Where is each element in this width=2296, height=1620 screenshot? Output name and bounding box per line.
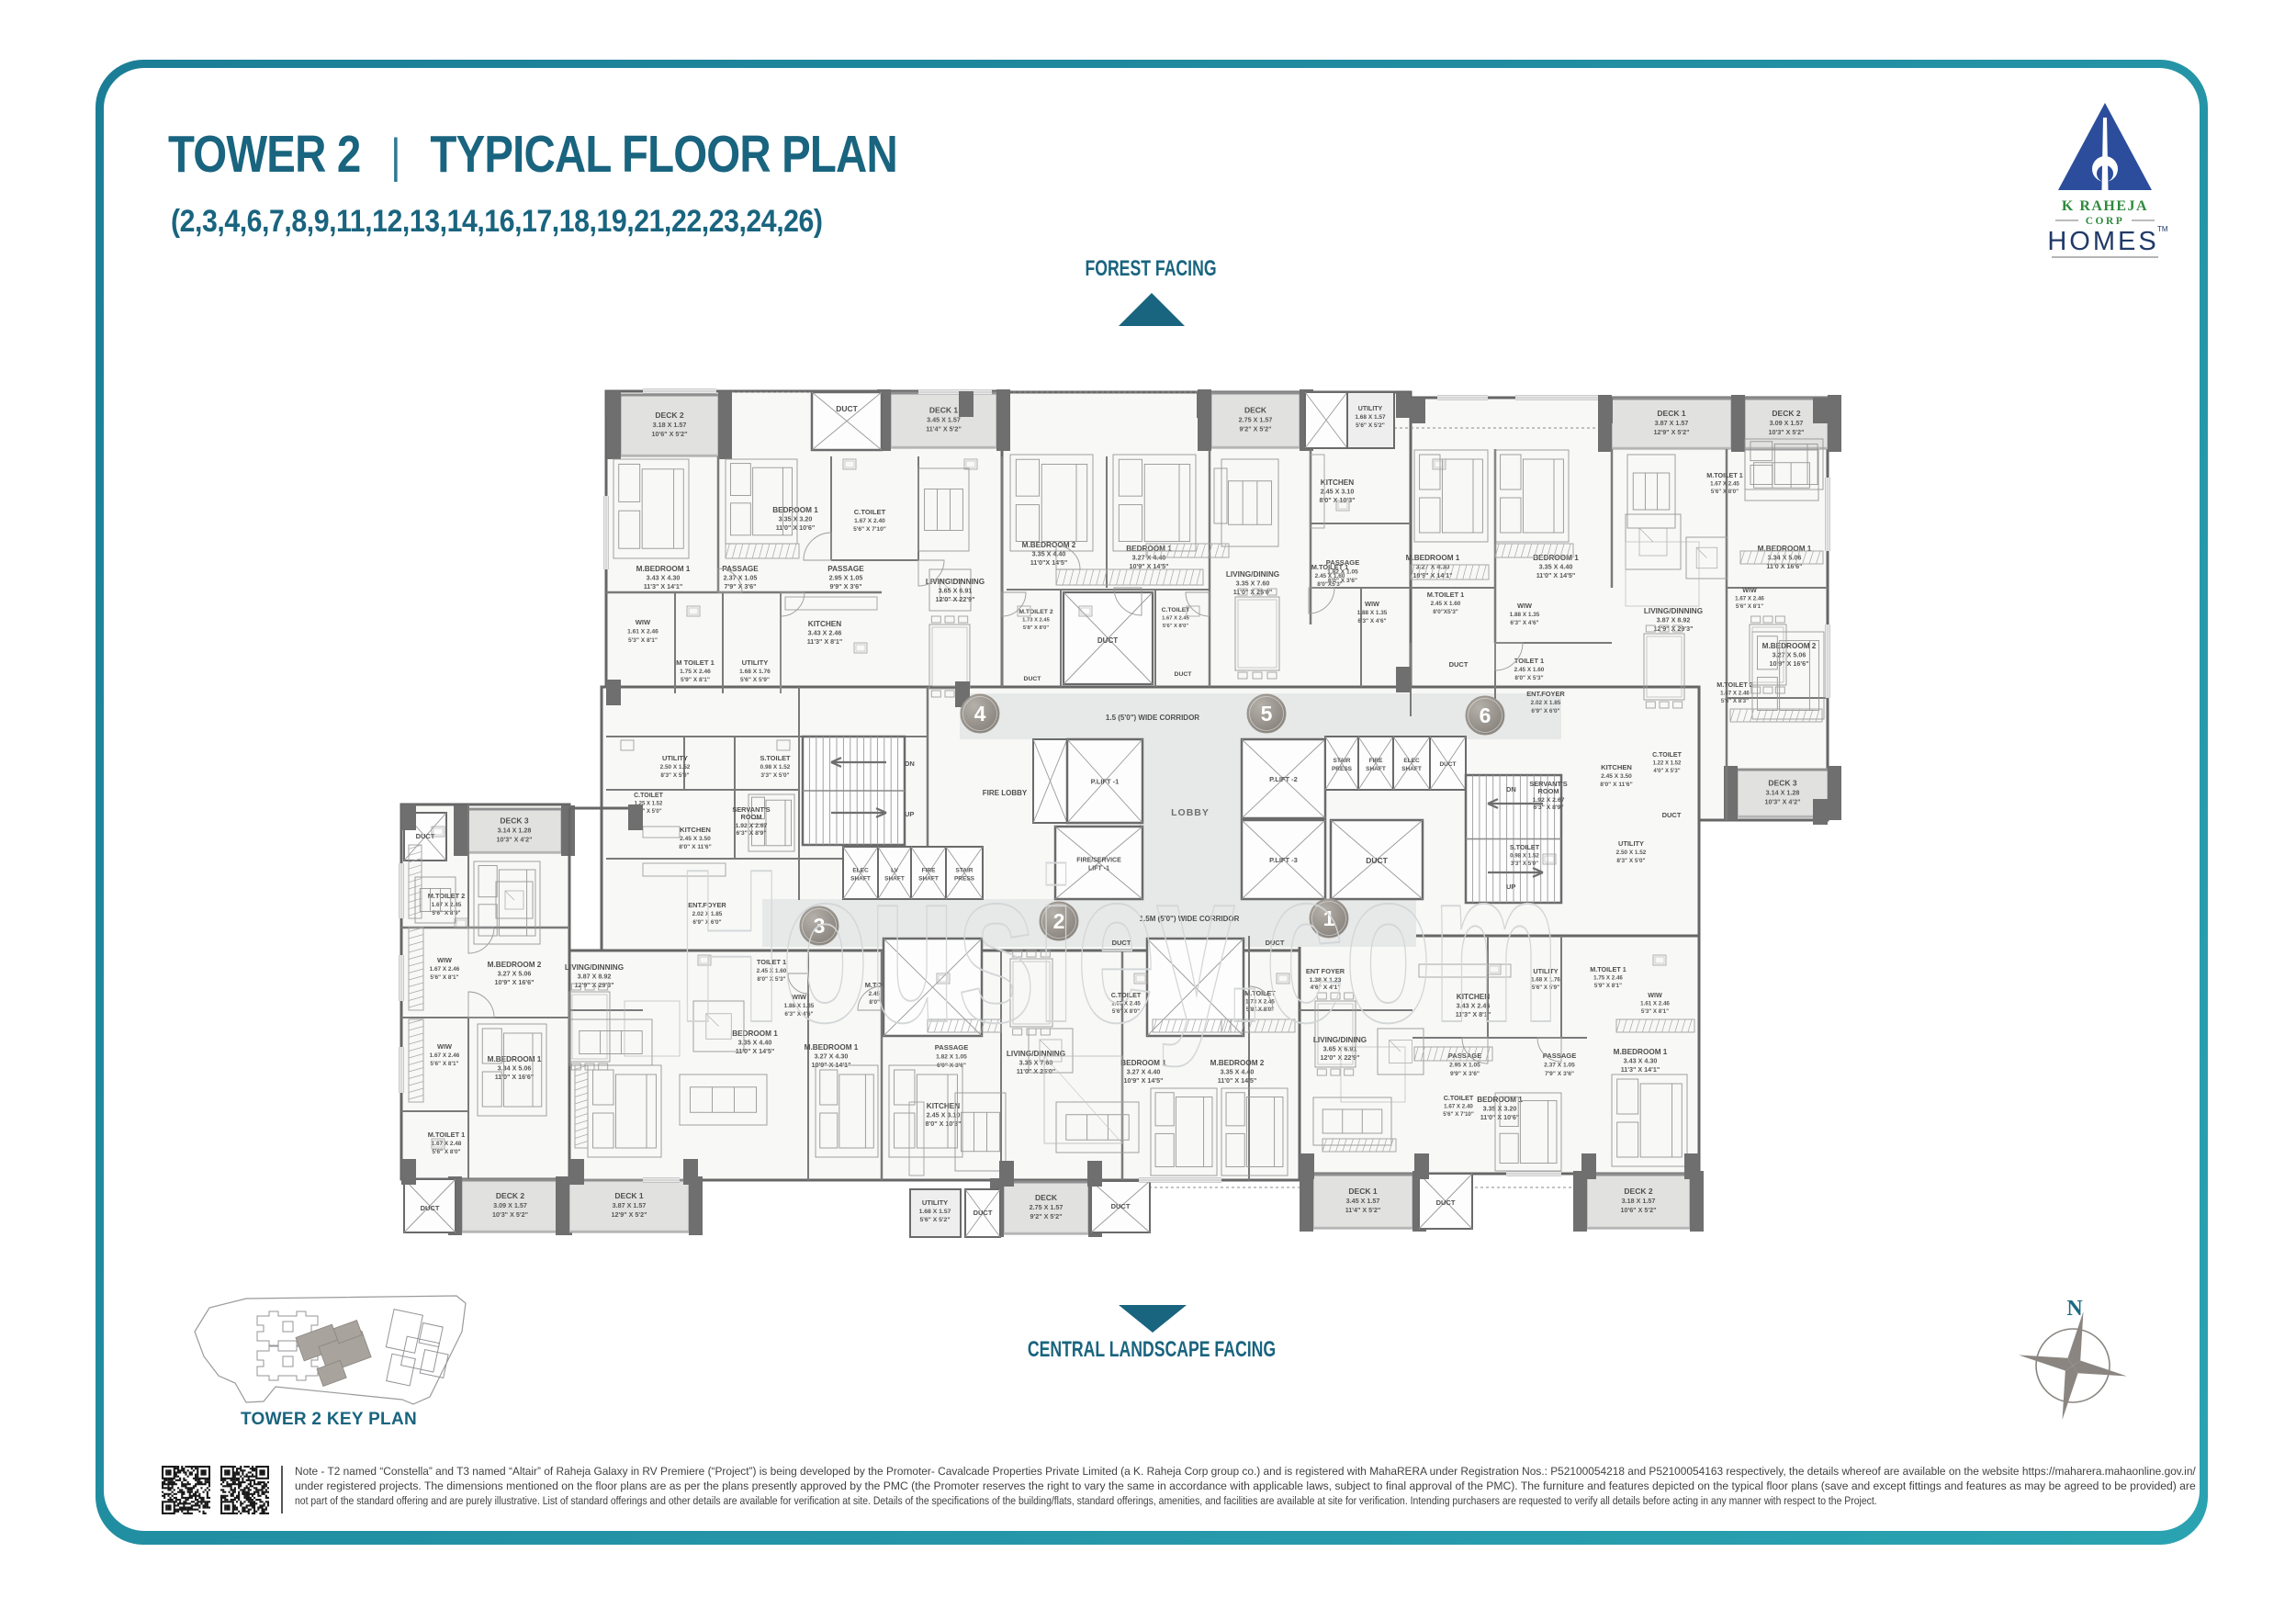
svg-text:11'0" X 14'5": 11'0" X 14'5" [1536,571,1576,579]
svg-text:1.88 X 1.35: 1.88 X 1.35 [1357,610,1388,616]
svg-text:WIW: WIW [1648,991,1662,999]
svg-text:DN: DN [905,759,915,768]
svg-text:5'6" X 8'9": 5'6" X 8'9" [432,910,460,917]
svg-text:TM: TM [2157,225,2168,233]
svg-text:4'0" X 5'3": 4'0" X 5'3" [1653,769,1680,774]
svg-text:M.TOILET 2: M.TOILET 2 [1019,609,1052,615]
svg-text:UTILITY: UTILITY [1618,839,1644,848]
svg-text:3.43 X 4.30: 3.43 X 4.30 [1624,1057,1658,1065]
svg-text:KITCHEN: KITCHEN [1601,763,1632,771]
svg-text:11'0" X 14'5": 11'0" X 14'5" [1218,1076,1257,1085]
svg-text:3.27 X 4.40: 3.27 X 4.40 [1127,1068,1161,1076]
svg-text:DECK 1: DECK 1 [614,1191,643,1200]
svg-text:10'9" X 14'5": 10'9" X 14'5" [1123,1076,1163,1085]
svg-text:3.14 X 1.28: 3.14 X 1.28 [498,827,532,835]
svg-text:4: 4 [974,702,986,726]
svg-text:8'0" X 11'6": 8'0" X 11'6" [1600,782,1632,788]
svg-text:12'9" X 5'2": 12'9" X 5'2" [611,1210,647,1219]
svg-text:BEDROOM 1: BEDROOM 1 [1533,554,1579,562]
svg-text:2.45 X 3.50: 2.45 X 3.50 [1601,773,1632,780]
svg-text:M.BEDROOM 1: M.BEDROOM 1 [488,1055,542,1063]
svg-text:3.87 X 1.57: 3.87 X 1.57 [613,1201,647,1209]
svg-text:5'6" X 5'9": 5'6" X 5'9" [740,677,770,683]
svg-text:10'6" X 5'2": 10'6" X 5'2" [1620,1206,1656,1214]
svg-text:DN: DN [1506,785,1516,793]
svg-text:1.68 X 1.57: 1.68 X 1.57 [1355,414,1386,421]
svg-text:5'6" X 8'0": 5'6" X 8'0" [1711,489,1739,495]
svg-text:5'6" X 5'2": 5'6" X 5'2" [919,1217,950,1223]
svg-text:3.18 X 1.57: 3.18 X 1.57 [1622,1197,1656,1205]
svg-text:M.TOILET 1: M.TOILET 1 [1311,563,1349,571]
svg-text:P.LIFT -2: P.LIFT -2 [1269,775,1298,783]
svg-text:BEDROOM 1: BEDROOM 1 [1126,545,1172,553]
svg-text:6'3" X 4'6": 6'3" X 4'6" [1357,618,1386,624]
svg-text:1.88 X 1.35: 1.88 X 1.35 [1510,612,1540,618]
svg-text:3.43 X 2.46: 3.43 X 2.46 [808,629,842,637]
svg-text:DUCT: DUCT [836,404,858,413]
svg-text:DECK: DECK [1035,1193,1058,1202]
svg-text:11'3" X 14'1": 11'3" X 14'1" [1621,1065,1660,1074]
svg-text:5'6" X 8'1": 5'6" X 8'1" [430,974,458,981]
svg-text:8'0" X 10'3": 8'0" X 10'3" [925,1119,961,1128]
svg-text:5'6" X 8'1": 5'6" X 8'1" [1736,603,1763,610]
svg-text:KITCHEN: KITCHEN [1321,478,1354,487]
svg-text:1.61 X 2.46: 1.61 X 2.46 [627,629,658,636]
svg-text:K RAHEJA: K RAHEJA [2062,198,2148,214]
svg-text:DUCT: DUCT [1024,676,1042,682]
svg-text:PASSAGE: PASSAGE [722,565,759,573]
svg-text:6: 6 [1480,703,1491,727]
svg-text:3.35 X 4.40: 3.35 X 4.40 [1221,1068,1255,1076]
svg-text:M.BEDROOM 2: M.BEDROOM 2 [1022,541,1076,549]
svg-text:10'3" X 5'2": 10'3" X 5'2" [492,1210,528,1219]
svg-text:DECK 2: DECK 2 [1624,1187,1652,1196]
svg-text:3.87 X 1.57: 3.87 X 1.57 [1655,419,1689,427]
svg-text:8'0"X5'3": 8'0"X5'3" [1317,581,1343,588]
svg-text:BEDROOM 1: BEDROOM 1 [772,506,818,514]
svg-text:3.35 X 3.20: 3.35 X 3.20 [779,515,813,523]
svg-text:WIW: WIW [1742,586,1757,594]
svg-text:LOBBY: LOBBY [1171,807,1210,818]
svg-text:10'3" X 4'2": 10'3" X 4'2" [496,836,532,844]
svg-text:2.50 X 1.52: 2.50 X 1.52 [1616,849,1647,856]
svg-text:UP: UP [905,810,914,818]
svg-text:M.BEDROOM 1: M.BEDROOM 1 [636,565,691,573]
svg-text:10'9" X 16'6": 10'9" X 16'6" [1769,659,1808,668]
svg-text:KITCHEN: KITCHEN [808,620,841,628]
svg-text:2.45 X 1.60: 2.45 X 1.60 [1315,573,1345,579]
svg-text:5'8" X 8'0": 5'8" X 8'0" [1023,625,1049,631]
svg-text:DECK 3: DECK 3 [500,816,528,826]
svg-text:3'3" X 5'0": 3'3" X 5'0" [760,772,789,779]
svg-text:2.75 X 1.57: 2.75 X 1.57 [1030,1203,1064,1211]
svg-text:C.TOILET: C.TOILET [1162,607,1191,613]
svg-text:C.TOILET: C.TOILET [854,508,886,516]
svg-text:5: 5 [1261,702,1273,726]
svg-text:M.BEDROOM 1: M.BEDROOM 1 [1758,545,1812,553]
svg-text:FIRE LOBBY: FIRE LOBBY [983,789,1028,797]
svg-text:0.98 X 1.52: 0.98 X 1.52 [760,764,791,771]
svg-text:3.14 X 1.28: 3.14 X 1.28 [1766,789,1800,797]
svg-text:5'9" X 8'1": 5'9" X 8'1" [1594,983,1622,989]
svg-text:ELEC: ELEC [1403,758,1420,764]
svg-text:11'0" X 10'6": 11'0" X 10'6" [776,523,816,532]
svg-text:8'3" X 5'0": 8'3" X 5'0" [660,772,689,779]
svg-text:3.35 X 4.40: 3.35 X 4.40 [1539,563,1573,571]
svg-text:ENT.FOYER: ENT.FOYER [1526,690,1565,698]
svg-text:DUCT: DUCT [416,832,435,840]
svg-text:5'6" X 8'3": 5'6" X 8'3" [1721,698,1749,704]
svg-text:DECK 2: DECK 2 [496,1191,524,1200]
svg-text:6'3" X 8'9": 6'3" X 8'9" [1533,804,1563,811]
svg-text:DUCT: DUCT [1662,811,1682,819]
svg-text:DECK 2: DECK 2 [1772,409,1800,418]
svg-text:3.27 X 5.06: 3.27 X 5.06 [498,970,532,978]
svg-text:2.45 X 1.60: 2.45 X 1.60 [1431,601,1461,607]
svg-text:DUCT: DUCT [1175,671,1193,678]
svg-text:8'3" X 5'0": 8'3" X 5'0" [1616,858,1645,864]
svg-text:2.95 X 1.05: 2.95 X 1.05 [829,574,863,582]
svg-text:6'9" X 6'0": 6'9" X 6'0" [1531,708,1559,714]
svg-text:1.73 X 2.45: 1.73 X 2.45 [1022,618,1050,624]
svg-text:M.TOILET 1: M.TOILET 1 [1706,471,1742,479]
svg-text:1.67 X 2.40: 1.67 X 2.40 [854,518,885,524]
svg-text:1.67 X 2.46: 1.67 X 2.46 [430,966,460,973]
svg-text:5'6" X 7'10": 5'6" X 7'10" [853,526,886,533]
svg-text:1.67 X 2.40: 1.67 X 2.40 [1444,1104,1473,1110]
svg-text:DUCT: DUCT [1449,660,1469,669]
svg-text:N: N [2066,1297,2083,1321]
svg-text:2.45 X 1.60: 2.45 X 1.60 [1514,667,1545,673]
svg-text:UTILITY: UTILITY [742,658,769,667]
svg-text:10'9" X 16'6": 10'9" X 16'6" [494,978,534,986]
svg-text:2.45 X 3.10: 2.45 X 3.10 [1321,488,1355,496]
svg-text:1.61 X 2.46: 1.61 X 2.46 [1640,1001,1670,1007]
svg-text:2.02 X 1.85: 2.02 X 1.85 [1531,700,1561,706]
svg-text:DECK 1: DECK 1 [1348,1187,1377,1196]
svg-text:1.67 X 2.45: 1.67 X 2.45 [1710,481,1739,488]
svg-text:WIW: WIW [437,1042,452,1051]
svg-text:M.TOILET 2: M.TOILET 2 [428,892,466,900]
svg-text:12'9" X 5'2": 12'9" X 5'2" [1653,428,1689,436]
svg-text:UTILITY: UTILITY [662,754,688,762]
svg-text:11'3" X 14'1": 11'3" X 14'1" [644,582,683,591]
svg-text:3.87 X 8.92: 3.87 X 8.92 [578,973,612,981]
svg-text:DUCT: DUCT [974,1209,993,1217]
svg-text:11'4" X 5'2": 11'4" X 5'2" [926,425,962,433]
svg-text:10'6" X 5'2": 10'6" X 5'2" [651,430,687,438]
svg-text:1.68 X 1.76: 1.68 X 1.76 [739,669,771,675]
svg-text:10'3" X 5'2": 10'3" X 5'2" [1768,428,1804,436]
svg-text:UTILITY: UTILITY [922,1198,948,1207]
svg-text:SHAFT: SHAFT [1401,766,1422,772]
svg-text:LIVING/DINNING: LIVING/DINNING [1644,607,1703,615]
svg-text:10'3" X 4'2": 10'3" X 4'2" [1764,798,1800,806]
svg-text:DECK 3: DECK 3 [1768,779,1796,788]
svg-text:WIW: WIW [437,956,452,964]
svg-text:1.68 X 1.57: 1.68 X 1.57 [919,1209,951,1215]
svg-text:M.BEDROOM 2: M.BEDROOM 2 [1762,642,1817,650]
svg-text:9'9" X 3'6": 9'9" X 3'6" [1450,1071,1480,1077]
svg-text:C.TOILET: C.TOILET [1444,1094,1474,1102]
svg-text:DUCT: DUCT [1111,1202,1131,1210]
svg-text:1.67 X 2.45: 1.67 X 2.45 [1162,616,1189,622]
svg-text:DUCT: DUCT [1439,761,1456,768]
svg-text:1.67 X 2.46: 1.67 X 2.46 [1720,691,1750,697]
svg-text:3.65 X 6.91: 3.65 X 6.91 [939,587,973,595]
svg-text:5'6" X 7'10": 5'6" X 7'10" [1443,1111,1474,1118]
svg-text:1.67 X 2.45: 1.67 X 2.45 [432,902,462,908]
svg-text:3.45 X 1.57: 3.45 X 1.57 [927,416,961,424]
svg-text:DECK 1: DECK 1 [929,406,958,415]
svg-text:UTILITY: UTILITY [1358,406,1383,412]
svg-text:LIVING\DINNING: LIVING\DINNING [926,578,985,586]
svg-text:5'6" X 5'2": 5'6" X 5'2" [1356,422,1385,429]
svg-text:3.45 X 1.57: 3.45 X 1.57 [1346,1197,1380,1205]
svg-text:ROOM: ROOM [1538,787,1559,795]
svg-text:1.67 X 2.46: 1.67 X 2.46 [430,1052,460,1059]
svg-text:DECK 2: DECK 2 [655,411,683,420]
svg-text:WIW: WIW [1517,602,1532,610]
svg-text:3.09 X 1.57: 3.09 X 1.57 [493,1201,527,1209]
svg-text:S.TOILET: S.TOILET [760,754,791,762]
svg-text:M.TOILET 1: M.TOILET 1 [1590,965,1626,973]
svg-text:ROOM: ROOM [741,813,762,821]
svg-text:8'0"X5'3": 8'0"X5'3" [1433,609,1458,615]
svg-text:1.22 X 1.52: 1.22 X 1.52 [1653,761,1682,767]
svg-text:PASSAGE: PASSAGE [827,565,864,573]
svg-text:M.TOILET 2: M.TOILET 2 [1716,681,1752,689]
svg-text:P.LIFT -1: P.LIFT -1 [1091,778,1120,786]
svg-text:11'0" X 16'6": 11'0" X 16'6" [495,1073,535,1081]
svg-text:DUCT: DUCT [1097,636,1118,645]
svg-text:C.TOILET: C.TOILET [634,793,663,799]
svg-text:3.34 X 5.06: 3.34 X 5.06 [498,1064,532,1073]
svg-text:C.TOILET: C.TOILET [1652,752,1682,759]
svg-text:3.87 X 8.92: 3.87 X 8.92 [1657,616,1691,624]
svg-text:5'6" X 8'0": 5'6" X 8'0" [432,1149,460,1155]
svg-text:9'2" X 5'2": 9'2" X 5'2" [1030,1212,1062,1221]
svg-text:DECK: DECK [1244,406,1267,415]
svg-text:WIW: WIW [1365,600,1379,608]
svg-text:5'3" X 8'1": 5'3" X 8'1" [1641,1008,1669,1015]
svg-text:CORP: CORP [2086,216,2125,227]
svg-text:2.75 X 1.57: 2.75 X 1.57 [1239,416,1273,424]
svg-text:M TOILET 1: M TOILET 1 [676,658,715,667]
svg-text:1.75 X 2.46: 1.75 X 2.46 [680,669,711,675]
svg-text:STAIR: STAIR [1333,758,1350,764]
svg-text:11'3" X 8'1": 11'3" X 8'1" [807,637,843,646]
svg-text:3.35 X 7.60: 3.35 X 7.60 [1236,579,1270,588]
svg-text:2.50 X 1.52: 2.50 X 1.52 [660,764,691,771]
svg-text:M.BEDROOM 1: M.BEDROOM 1 [1614,1048,1668,1056]
svg-text:1.67 X 2.46: 1.67 X 2.46 [1735,596,1764,602]
svg-text:PRESS: PRESS [1332,766,1353,772]
svg-text:DECK 1: DECK 1 [1657,409,1685,418]
svg-text:LIVING/DINING: LIVING/DINING [1226,570,1279,579]
svg-text:HOMES: HOMES [2047,227,2158,256]
svg-text:6'3" X 4'6": 6'3" X 4'6" [1510,620,1538,626]
svg-text:3.18 X 1.57: 3.18 X 1.57 [653,421,687,429]
svg-text:8'0" X 5'3": 8'0" X 5'3" [1514,675,1543,681]
svg-text:DUCT: DUCT [1436,1198,1456,1207]
svg-text:1.67 X 2.48: 1.67 X 2.48 [432,1141,462,1147]
svg-text:9'2" X 5'2": 9'2" X 5'2" [1239,425,1271,433]
svg-text:M.BEDROOM 1: M.BEDROOM 1 [1406,554,1460,562]
svg-text:SHAFT: SHAFT [1366,766,1386,772]
svg-text:3.43 X 4.30: 3.43 X 4.30 [647,574,681,582]
svg-text:M.TOILET 1: M.TOILET 1 [1427,591,1465,599]
svg-text:12'0" X 22'9": 12'0" X 22'9" [935,595,974,603]
svg-text:DUCT: DUCT [421,1204,440,1212]
svg-text:1.5 (5'0") WIDE CORRIDOR: 1.5 (5'0") WIDE CORRIDOR [1106,714,1199,722]
svg-text:7'9" X 3'6": 7'9" X 3'6" [1545,1071,1574,1077]
svg-text:LIVING/DINNING: LIVING/DINNING [565,963,624,972]
svg-text:3.09 X 1.57: 3.09 X 1.57 [1770,419,1804,427]
svg-text:M.TOILET 1: M.TOILET 1 [428,1131,466,1139]
svg-text:5'6" X 8'0": 5'6" X 8'0" [1163,624,1188,629]
svg-text:1.75 X 2.46: 1.75 X 2.46 [1593,975,1623,982]
svg-text:2.37 X 1.05: 2.37 X 1.05 [724,574,758,582]
svg-text:11'0" X 25'0": 11'0" X 25'0" [1017,1067,1056,1075]
svg-text:WIW: WIW [636,618,651,626]
svg-text:5'3" X 8'1": 5'3" X 8'1" [628,637,658,644]
svg-text:11'0 X 16'6": 11'0 X 16'6" [1766,562,1802,570]
svg-text:FIRE: FIRE [1369,758,1383,764]
svg-text:5'9" X 8'1": 5'9" X 8'1" [681,677,710,683]
svg-text:1.92 X 2.67: 1.92 X 2.67 [1533,797,1565,804]
svg-text:11'4" X 5'2": 11'4" X 5'2" [1345,1206,1381,1214]
svg-text:Housiey.com: Housiey.com [678,825,1559,1068]
svg-text:11'0"X 14'5": 11'0"X 14'5" [1030,558,1068,567]
svg-text:9'9" X 3'6": 9'9" X 3'6" [829,582,861,591]
svg-text:5'6" X 8'1": 5'6" X 8'1" [430,1061,458,1067]
svg-text:M.BEDROOM 2: M.BEDROOM 2 [488,961,542,969]
